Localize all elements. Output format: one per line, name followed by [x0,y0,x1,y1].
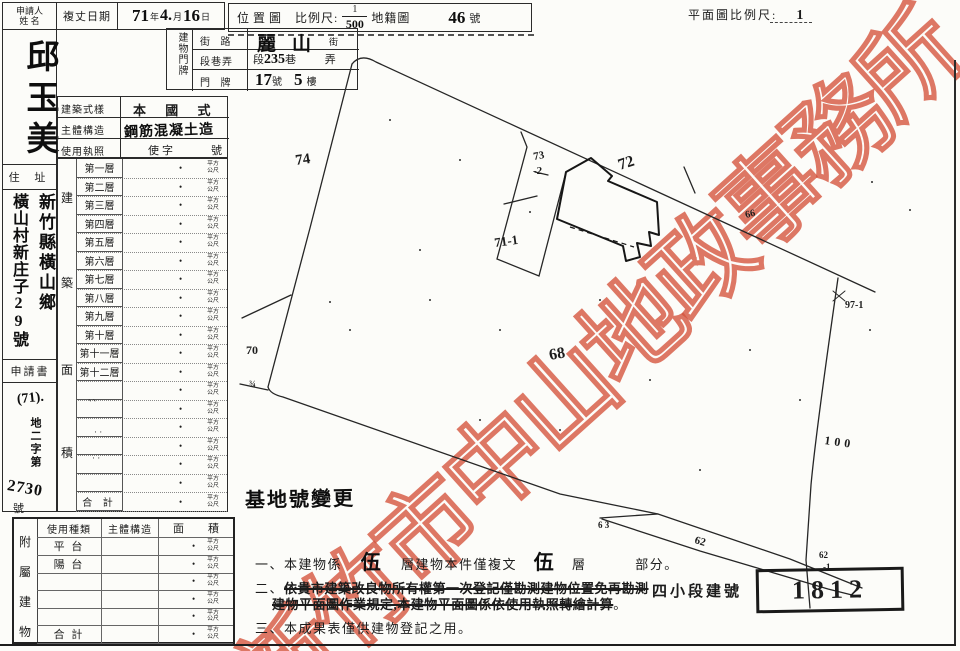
unit-square-meters: 平方公尺 [201,476,225,490]
unit-square-meters: 平方公尺 [201,365,225,379]
floor-label: 第七層 [76,270,123,289]
parcel-73-suffix: -2 [533,165,543,177]
license-value-left: 使字 [148,142,176,158]
scan-scribble: · · [94,427,102,437]
date-year-unit: 年 [150,10,159,23]
note1-floors-handwritten-2: 伍 [534,552,556,574]
license-label: 使用執照 [61,143,105,158]
area-dot: • [179,237,182,247]
unit-bottom: 公尺 [202,187,224,193]
building-info-divider [120,97,121,159]
door-number-unit: 號 [272,77,282,88]
annex-vertical-label: 附 [19,533,31,550]
cadastral-label: 地籍圖 [371,9,410,26]
unit-bottom: 公尺 [202,391,224,397]
floor-row: 第六層•平方公尺 [76,252,227,272]
note-3: 三、本成果表僅供建物登記之用。 [255,618,473,637]
unit-bottom: 公尺 [202,502,224,508]
survey-date-value-cell: 71 年 4. 月 16 日 [117,2,225,30]
section-row-value: 段235巷 弄 [253,51,336,68]
area-dot: • [192,541,195,551]
floor-label: 第十一層 [76,344,123,363]
application-label: 申請書 [11,363,50,379]
area-dot: • [179,459,182,469]
site-number-change-note: 基地號變更 [245,482,355,513]
parcel-74: 74 [294,151,312,169]
unit-square-meters: 平方公尺 [201,574,225,588]
annex-structure-cell [102,572,159,590]
floor-row: •平方公尺 [76,474,227,494]
scan-scribble: · · [92,453,100,463]
parcel-62-right: 62 [819,550,829,560]
unit-bottom: 公尺 [202,617,224,623]
floor-label: 第六層 [76,252,123,271]
unit-bottom: 公尺 [202,546,224,552]
annex-vertical-label: 屬 [19,563,31,580]
unit-square-meters: 平方公尺 [201,439,225,453]
survey-date-label: 複丈日期 [63,8,111,24]
structure-label: 主體構造 [61,122,105,137]
area-dot: • [179,478,182,488]
street-label: 街 路 [200,33,235,48]
unit-bottom: 公尺 [202,169,224,175]
unit-bottom: 公尺 [202,599,224,605]
application-label-cell: 申請書 [3,359,57,383]
scanned-building-survey-form: 新竹市中山地政事務所 [0,0,960,651]
annex-structure-cell [102,590,159,608]
unit-bottom: 公尺 [202,483,224,489]
floor-row: 第八層•平方公尺 [76,289,227,309]
unit-bottom: 公尺 [202,564,224,570]
area-dot: • [179,293,182,303]
parcel-68: 68 [548,344,567,364]
scale-fraction: 1 500 [342,5,367,30]
unit-square-meters: 平方公尺 [201,627,225,641]
door-number: 17 [255,70,272,89]
plan-scale-numerator: 1 [796,8,805,23]
note3-text: 三、本成果表僅供建物登記之用。 [255,621,473,636]
unit-bottom: 公尺 [202,298,224,304]
note1-text-f: 部分。 [635,557,679,572]
parcel-72: 72 [616,153,636,174]
floor-table-vertical-label: 積 [58,444,76,461]
building-info-block: 建築式樣 本 國 式 主體構造 鋼筋混凝土造 使用執照 使字 號 [57,96,228,158]
annex-row: •平方公尺 [37,590,233,609]
unit-square-meters: 平方公尺 [201,272,225,286]
unit-square-meters: 平方公尺 [201,180,225,194]
note2-struck-line2: 建物平面圖作業規定,本建物平面圖係依使用執照轉繪計算 [272,597,613,612]
unit-square-meters: 平方公尺 [201,383,225,397]
area-dot: • [192,629,195,639]
unit-bottom: 公尺 [202,634,224,640]
page-border-right [954,60,956,646]
unit-bottom: 公尺 [202,317,224,323]
area-dot: • [179,441,182,451]
note1-text-a: 一、本建物係 [255,557,342,572]
unit-square-meters: 平方公尺 [201,235,225,249]
applicant-name: 邱玉美 [15,39,63,162]
scan-scribble: 、、 [88,391,102,404]
note1-floors-handwritten-1: 伍 [361,552,383,574]
application-no-body: 地二字第 [27,417,43,469]
unit-square-meters: 平方公尺 [201,217,225,231]
plan-scale-label: 平面圖比例尺: [688,8,777,22]
area-dot: • [179,422,182,432]
unit-square-meters: 平方公尺 [201,309,225,323]
parcel-97-1: 97-1 [845,300,863,311]
unit-square-meters: 平方公尺 [201,161,225,175]
parcel-73: 73 [532,149,545,163]
floor-row: 第一層•平方公尺 [76,159,227,179]
unit-bottom: 公尺 [202,428,224,434]
annex-header-row: 使用種類主體構造面積 [37,519,233,538]
section-mid: 巷 [285,54,296,66]
area-dot: • [179,367,182,377]
unit-top: 平方 [202,557,224,563]
annex-total-label: 合 計 [37,625,102,643]
annex-structure-cell [102,537,159,555]
area-dot: • [179,497,182,507]
building-number-label: 四小段建號 [652,580,742,601]
parcel-63: 6 3 [598,520,610,530]
style-value: 本 國 式 [133,100,219,119]
unit-bottom: 公尺 [202,582,224,588]
area-dot: • [179,385,182,395]
floor-row: 第三層•平方公尺 [76,196,227,216]
floor-label: 第五層 [76,233,123,252]
floor-row: 第十一層•平方公尺 [76,344,227,364]
unit-bottom: 公尺 [202,206,224,212]
annex-col-structure: 主體構造 [102,519,159,537]
area-dot: • [179,348,182,358]
structure-value: 鋼筋混凝土造 [124,118,215,141]
floor-label: 第三層 [76,196,123,215]
unit-square-meters: 平方公尺 [201,420,225,434]
area-dot: • [179,404,182,414]
door-row-value: 17號 5樓 [255,70,317,90]
floor-label: 第二層 [76,178,123,197]
floor-row: 第四層•平方公尺 [76,215,227,235]
building-number-box: 1812 [756,567,905,614]
address-label-cell: 住 址 [3,164,57,190]
unit-bottom: 公尺 [202,280,224,286]
application-no-suffix: 號 [13,500,24,516]
door-label: 門 牌 [200,74,235,89]
unit-square-meters: 平方公尺 [201,495,225,509]
annex-building-table: 附屬建物使用種類主體構造面積平 台•平方公尺陽 台•平方公尺•平方公尺•平方公尺… [12,517,235,644]
application-no-number: 2730 [6,477,45,501]
door-floor-unit: 樓 [307,77,317,88]
plan-scale-dash [770,22,812,23]
date-day-unit: 日 [201,10,210,23]
unit-square-meters: 平方公尺 [201,346,225,360]
date-year: 71 [132,6,149,26]
area-dot: • [179,219,182,229]
floor-label: 第一層 [76,159,123,178]
annex-row-label [37,590,102,608]
floor-label: 第九層 [76,307,123,326]
license-value-right: 號 [211,142,222,158]
note1-text-e: 層 [572,557,587,572]
unit-bottom: 公尺 [202,409,224,415]
unit-bottom: 公尺 [202,446,224,452]
annex-row-label [37,607,102,625]
floor-label: 第十二層 [76,363,123,382]
building-outline [557,158,659,261]
floor-label-empty [76,474,123,493]
area-dot: • [192,594,195,604]
annex-col-area-2: 積 [208,520,219,536]
parcel-71-1: 71-1 [493,232,519,250]
parcel-boundaries [240,58,875,608]
floor-area-table: 建築面積第一層•平方公尺第二層•平方公尺第三層•平方公尺第四層•平方公尺第五層•… [57,158,228,512]
annex-col-kind: 使用種類 [37,519,102,537]
floor-row: 第二層•平方公尺 [76,178,227,198]
annex-row: •平方公尺 [37,607,233,626]
unit-square-meters: 平方公尺 [201,291,225,305]
scale-numerator: 1 [342,5,367,17]
parcel-small: ¾ [249,379,256,389]
annex-structure-cell [102,607,159,625]
unit-square-meters: 平方公尺 [201,539,225,553]
unit-bottom: 公尺 [202,335,224,341]
unit-bottom: 公尺 [202,354,224,360]
floor-label: 第十層 [76,326,123,345]
date-month-unit: 月 [173,10,182,23]
address-column-right: 新竹縣橫山鄉 [33,193,58,313]
floor-total-label: 合 計 [76,492,123,511]
application-no-prefix: (71). [16,390,44,409]
door-plate-grid-lines [192,29,193,91]
annex-structure-cell [102,625,159,643]
parcel-70: 70 [246,343,258,357]
area-dot: • [179,274,182,284]
door-floor: 5 [294,70,303,89]
annex-row-label [37,572,102,590]
area-dot: • [179,163,182,173]
section-label: 段巷弄 [200,53,233,68]
floor-table-vertical-label: 築 [58,274,76,291]
unit-square-meters: 平方公尺 [201,557,225,571]
parcel-62: 62 [693,534,707,549]
area-dot: • [192,576,195,586]
area-dot: • [179,256,182,266]
unit-bottom: 公尺 [202,372,224,378]
cadastral-unit: 號 [469,10,481,26]
area-dot: • [179,200,182,210]
area-dot: • [179,330,182,340]
floor-table-vertical-label: 面 [58,361,76,378]
floor-table-vertical-label: 建 [58,189,76,206]
page-border-bottom [0,644,956,646]
unit-bottom: 公尺 [202,465,224,471]
parcel-100: 100 [824,433,856,451]
unit-square-meters: 平方公尺 [201,402,225,416]
floor-label: 第四層 [76,215,123,234]
unit-square-meters: 平方公尺 [201,198,225,212]
door-plate-block-label: 建物門牌 [174,32,189,88]
annex-col-area-1: 面 [173,520,184,536]
unit-bottom: 公尺 [202,261,224,267]
note-2-line2: 建物平面圖作業規定,本建物平面圖係依使用執照轉繪計算。 [272,594,628,613]
floor-row: 第十層•平方公尺 [76,326,227,346]
door-plate-block: 建物門牌 街 路 麗山 街 段巷弄 段235巷 弄 門 牌 17號 5樓 [166,28,358,90]
floor-row: 第十二層•平方公尺 [76,363,227,383]
unit-square-meters: 平方公尺 [201,328,225,342]
unit-top: 平方 [202,495,224,501]
floor-row: 第七層•平方公尺 [76,270,227,290]
address-label: 住 址 [9,169,52,185]
survey-date-label-cell: 複丈日期 [56,2,118,30]
section-suffix: 弄 [325,54,336,66]
floor-label: 第八層 [76,289,123,308]
sidebar-column: 邱玉美 住 址 新竹縣橫山鄉 橫山村新庄子29號 申請書 (71). 地二字第 … [2,2,57,512]
area-dot: • [179,182,182,192]
section-pre: 段 [253,54,264,66]
location-map-label: 位置圖 [237,9,285,26]
date-day: 16 [183,6,200,26]
area-dot: • [179,311,182,321]
note1-text-c: 層建物本件僅複文 [401,557,517,572]
unit-square-meters: 平方公尺 [201,254,225,268]
door-plate-divider [247,29,248,91]
date-month: 4. [160,7,172,25]
style-label: 建築式樣 [61,101,105,116]
street-suffix: 街 [329,35,338,48]
floor-row: 第五層•平方公尺 [76,233,227,253]
annex-row: 陽 台•平方公尺 [37,555,233,574]
annex-row-label: 陽 台 [37,555,102,573]
section-number: 235 [264,52,285,67]
annex-total-row: 合 計•平方公尺 [37,625,233,644]
annex-vertical-label: 物 [19,623,31,640]
cadastral-sheet-number: 46 [448,8,465,28]
note-1: 一、本建物係 伍 層建物本件僅複文 伍 層 部分。 [255,546,679,575]
unit-bottom: 公尺 [202,224,224,230]
annex-row-label: 平 台 [37,537,102,555]
floor-total-row: 合 計•平方公尺 [76,492,227,512]
area-dot: • [192,611,195,621]
annex-structure-cell [102,555,159,573]
unit-square-meters: 平方公尺 [201,610,225,624]
building-number-value: 1812 [792,574,869,605]
scale-label: 比例尺: [295,9,338,26]
unit-bottom: 公尺 [202,243,224,249]
floor-row: 第九層•平方公尺 [76,307,227,327]
annex-row: 平 台•平方公尺 [37,537,233,556]
parcel-66: 66 [744,208,756,221]
address-column-left: 橫山村新庄子29號 [6,193,30,348]
annex-row: •平方公尺 [37,572,233,591]
unit-square-meters: 平方公尺 [201,457,225,471]
note2-period: 。 [613,597,628,612]
annex-vertical-label: 建 [19,593,31,610]
unit-square-meters: 平方公尺 [201,592,225,606]
area-dot: • [192,559,195,569]
